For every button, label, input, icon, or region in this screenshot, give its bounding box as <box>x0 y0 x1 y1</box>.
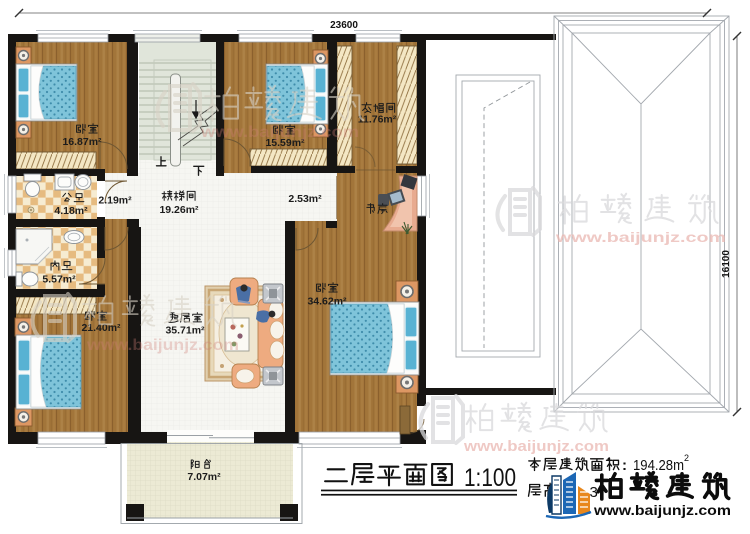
svg-text:23600: 23600 <box>330 20 358 31</box>
svg-text:35.71m²: 35.71m² <box>165 324 205 336</box>
svg-text:www.baijunjz.com: www.baijunjz.com <box>463 439 609 455</box>
svg-text:19.26m²: 19.26m² <box>159 204 199 216</box>
svg-text:1:100: 1:100 <box>464 464 516 492</box>
svg-text:34.62m²: 34.62m² <box>307 295 347 307</box>
svg-text:7.07m²: 7.07m² <box>187 471 221 483</box>
svg-text:5.57m²: 5.57m² <box>42 273 76 285</box>
svg-text:www.baijunjz.com: www.baijunjz.com <box>200 124 359 141</box>
svg-text:4.18m²: 4.18m² <box>54 205 88 217</box>
svg-text:www.baijunjz.com: www.baijunjz.com <box>593 503 731 518</box>
svg-text:www.baijunjz.com: www.baijunjz.com <box>86 337 239 354</box>
svg-text:16100: 16100 <box>721 250 732 278</box>
svg-text:16.87m²: 16.87m² <box>62 136 102 148</box>
svg-text:194.28m: 194.28m <box>633 458 684 474</box>
svg-text:2: 2 <box>684 453 689 463</box>
svg-text:www.baijunjz.com: www.baijunjz.com <box>555 229 726 245</box>
svg-text:2.53m²: 2.53m² <box>288 193 322 205</box>
svg-text::: : <box>622 457 627 474</box>
svg-text:2.19m²: 2.19m² <box>98 194 132 206</box>
